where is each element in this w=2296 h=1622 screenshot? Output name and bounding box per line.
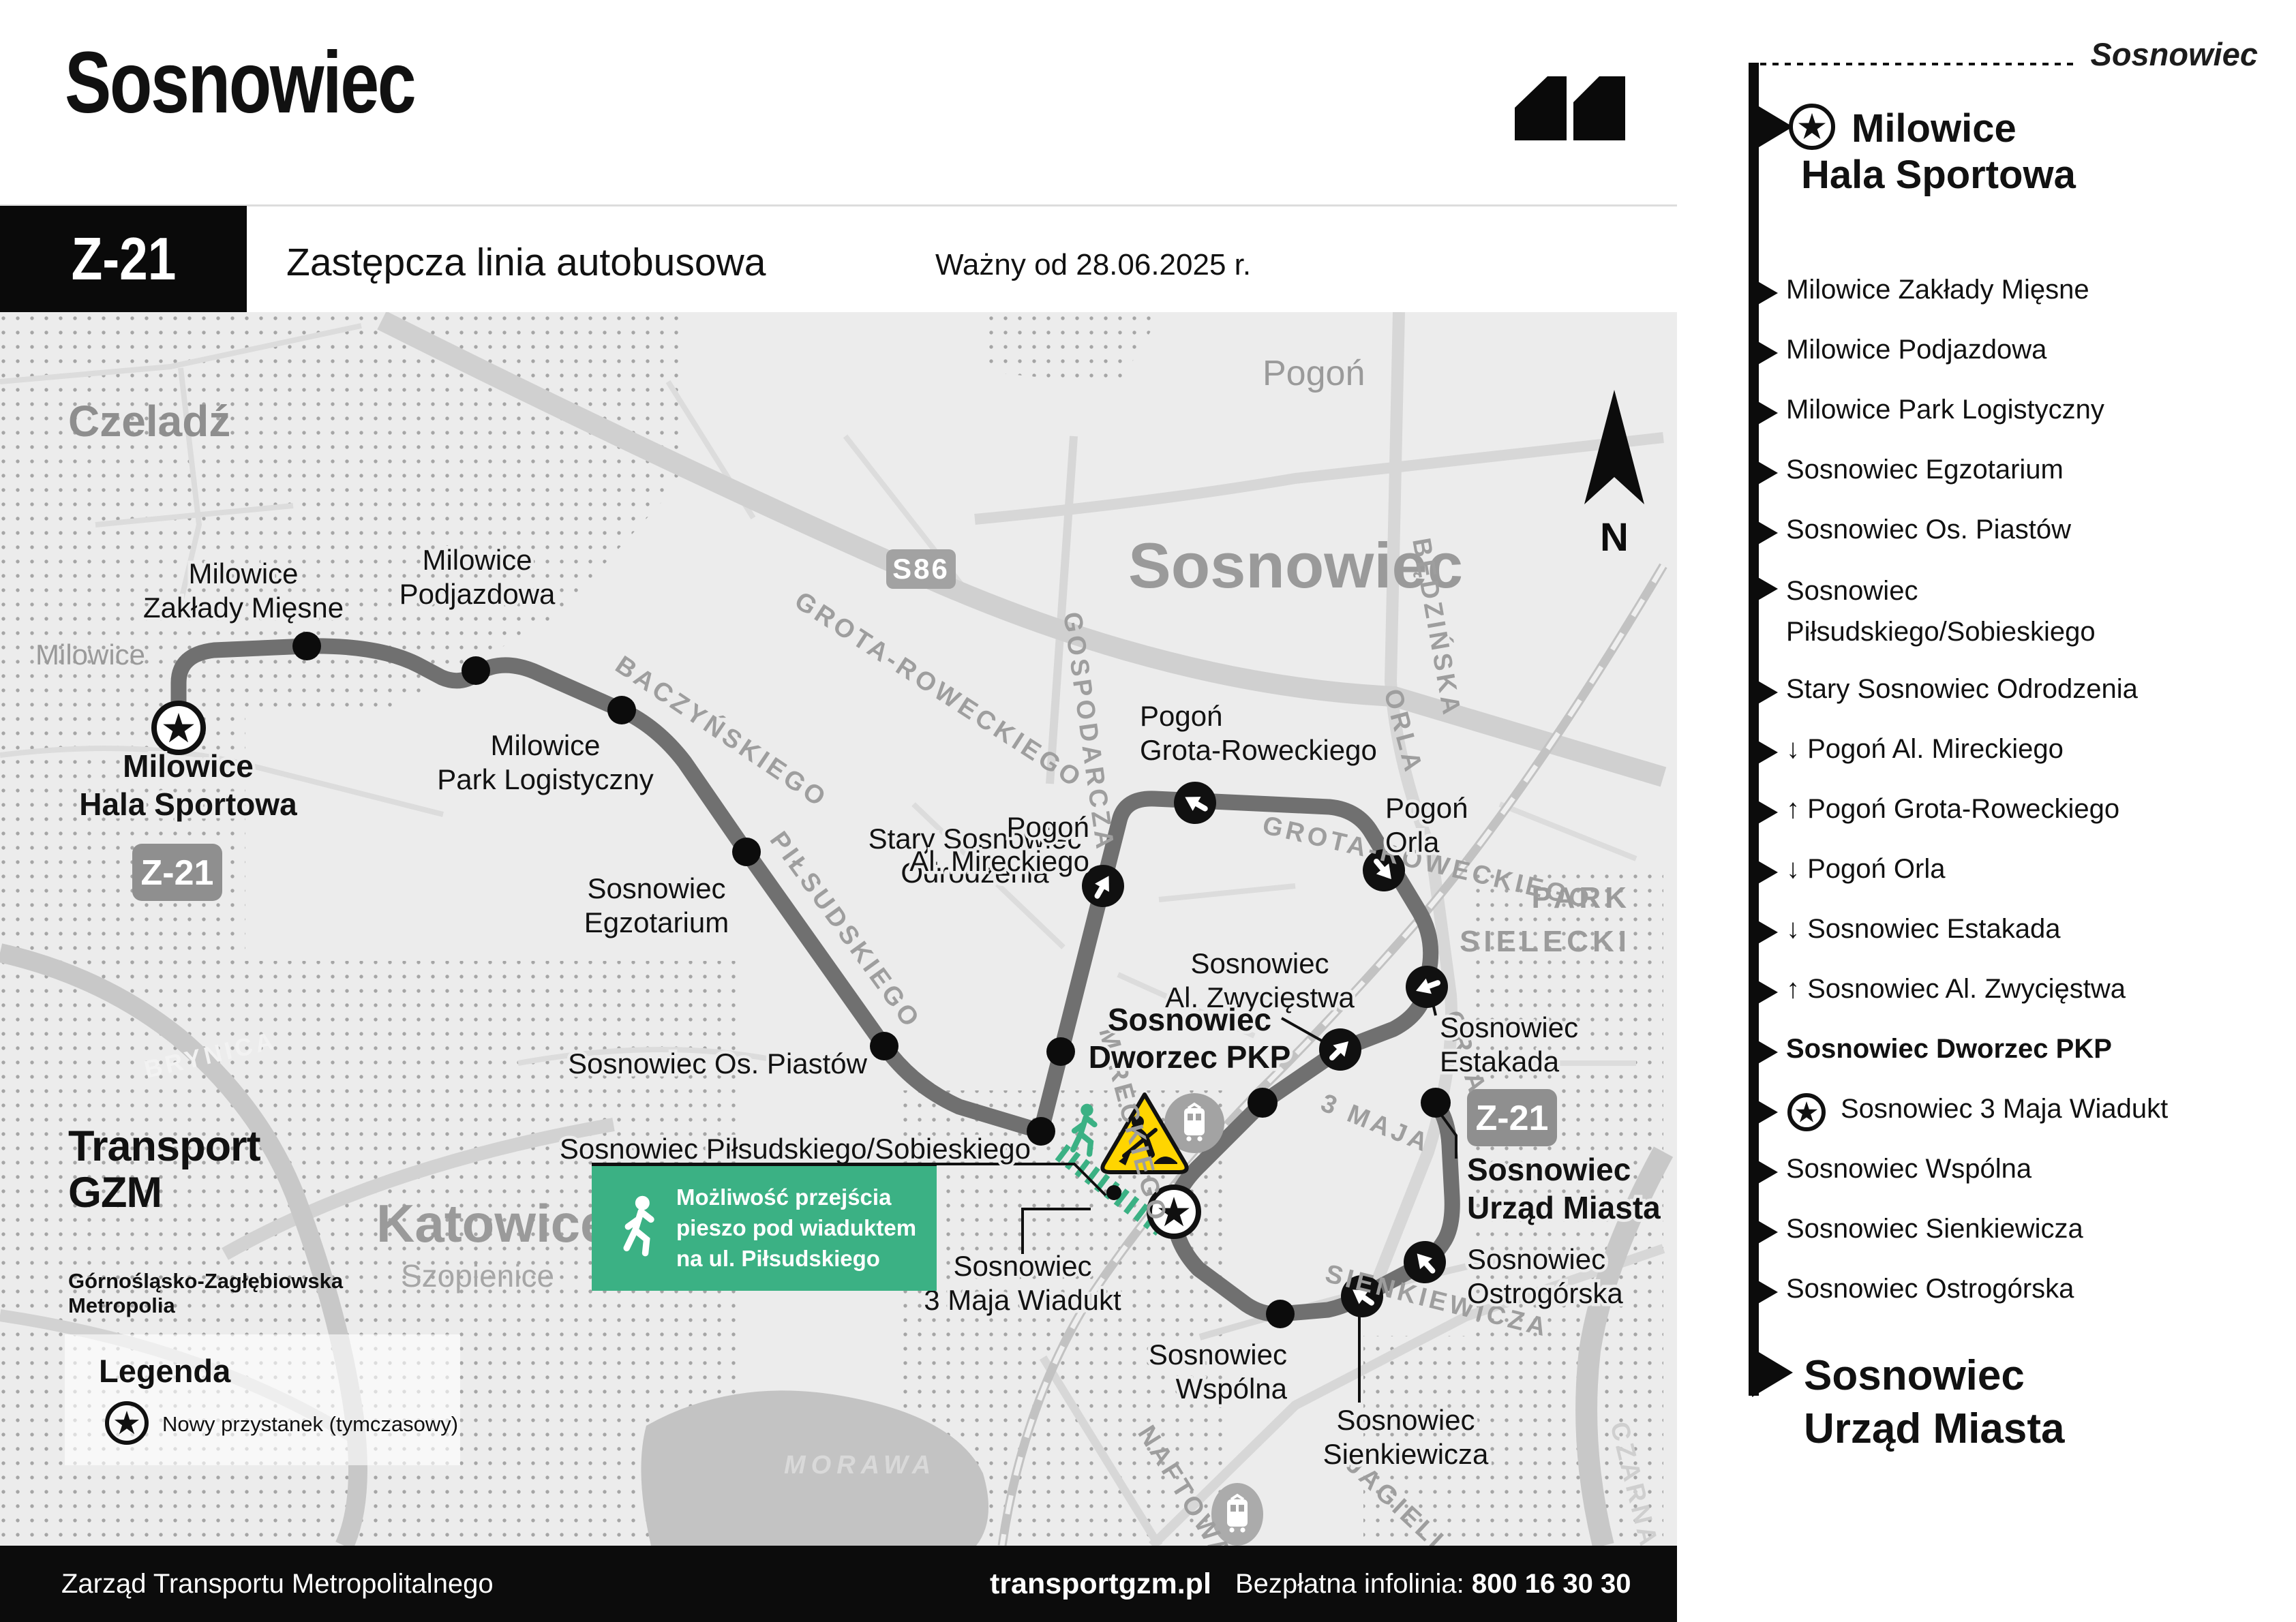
sidebar-stop-marker [1752, 977, 1778, 1007]
map-label: SIELECKI [1460, 925, 1631, 958]
sidebar-stop-label: ↓ Pogoń Orla [1786, 855, 1945, 883]
map-label: Pogoń [1140, 700, 1222, 732]
new-stop-star-icon [1786, 101, 1838, 153]
sidebar-stop-marker [1752, 338, 1778, 368]
svg-text:Z-21: Z-21 [141, 853, 214, 893]
map-label: Wspólna [1176, 1373, 1288, 1405]
sidebar-stop-label: Sosnowiec [1804, 1355, 2025, 1397]
map-label: Sosnowiec [1108, 1002, 1271, 1037]
sidebar-stop-label: Stary Sosnowiec Odrodzenia [1786, 675, 2138, 703]
sidebar-stop-marker [1752, 278, 1778, 308]
map-label: Katowice [376, 1193, 609, 1253]
sidebar-stop-label: Sosnowiec [1786, 577, 1918, 605]
map-label: Podjazdowa [399, 578, 556, 610]
stop-dot-dworzec-pkp [1248, 1088, 1278, 1118]
map-label: Szopienice [401, 1258, 554, 1294]
stop-dot-odrodzenia [1046, 1037, 1075, 1066]
hatch-midpoint-dot [1106, 1185, 1121, 1200]
map-label: Estakada [1440, 1045, 1560, 1077]
sidebar-stop-marker [1752, 857, 1778, 887]
sidebar-stop-label: Urząd Miasta [1804, 1408, 2064, 1450]
legend-title: Legenda [99, 1352, 230, 1390]
sidebar-stop-label: Milowice Zakłady Mięsne [1786, 276, 2089, 303]
svg-text:N: N [1600, 515, 1629, 560]
map-label: Sienkiewicza [1323, 1438, 1489, 1470]
map-label: Park Logistyczny [437, 763, 653, 795]
map-label: Pogoń [1263, 354, 1365, 393]
sidebar-stop-label: Piłsudskiego/Sobieskiego [1786, 618, 2096, 645]
sidebar-stop-label: Sosnowiec Wspólna [1786, 1155, 2031, 1182]
sidebar-stop-label: ↑ Sosnowiec Al. Zwycięstwa [1786, 975, 2126, 1003]
sidebar-stop-marker [1752, 1277, 1778, 1307]
map-label: Sosnowiec [1467, 1152, 1631, 1187]
sidebar-stop-label: Milowice Park Logistyczny [1786, 396, 2104, 423]
line-number-badge: Z-21 [0, 206, 247, 312]
svg-text:Z-21: Z-21 [1476, 1099, 1549, 1138]
map-label: Milowice [422, 544, 532, 576]
legend-item-label: Nowy przystanek (tymczasowy) [162, 1412, 458, 1437]
map-label: Ostrogórska [1467, 1277, 1623, 1309]
sidebar-stop-label: ↓ Pogoń Al. Mireckiego [1786, 735, 2064, 763]
sidebar-stop-marker [1752, 458, 1778, 488]
svg-text:S86: S86 [892, 553, 950, 585]
sidebar-stop-marker [1752, 398, 1778, 428]
map-label: Milowice [123, 748, 254, 784]
sidebar-stop-label: Sosnowiec Os. Piastów [1786, 516, 2071, 543]
sidebar-stop-label: Milowice [1852, 109, 2016, 149]
sidebar-stop-marker [1752, 1157, 1778, 1187]
sidebar-stop-marker [1752, 917, 1778, 947]
map-label: Sosnowiec [1336, 1404, 1475, 1436]
map-label: Egzotarium [584, 906, 729, 938]
map-label: Al. Mireckiego [909, 845, 1089, 877]
sidebar-stop-marker [1752, 797, 1778, 827]
map-label: Milowice [490, 729, 600, 761]
walker-icon [611, 1191, 664, 1266]
route-badge-urzad: Z-21 [1467, 1089, 1557, 1146]
sidebar-stop-marker [1752, 574, 1778, 604]
stop-dot-park-logistyczny [607, 696, 636, 724]
sidebar-stop-label: ↓ Sosnowiec Estakada [1786, 915, 2060, 943]
map-label: Zakłady Mięsne [143, 592, 344, 624]
sidebar-stop-marker [1752, 677, 1778, 707]
operator-subtitle: Górnośląsko-Zagłębiowska Metropolia [68, 1269, 343, 1318]
new-stop-star-icon [1785, 1090, 1828, 1134]
footer-hotline: Bezpłatna infolinia: 800 16 30 30 [1235, 1569, 1631, 1600]
stop-dot-pilsudskiego-sobieskiego [1027, 1117, 1055, 1146]
page-title: Sosnowiec [65, 33, 414, 133]
sidebar-region-label: Sosnowiec [2004, 35, 2258, 73]
map-label: Sosnowiec [1440, 1011, 1578, 1043]
poster-page: S86 Z-21 Z-21 N CzeladźMilowiceSosnowiec… [0, 0, 2296, 1622]
legend-star-icon [102, 1398, 151, 1448]
map-label: 3 Maja Wiadukt [924, 1284, 1121, 1316]
sidebar-stop-label: Hala Sportowa [1801, 155, 2076, 195]
footer-website: transportgzm.pl [990, 1567, 1211, 1601]
pedestrian-note-text: Możliwość przejścia pieszo pod wiaduktem… [676, 1182, 916, 1274]
sidebar-stop-label: ↑ Pogoń Grota-Roweckiego [1786, 795, 2119, 823]
star-stop-hala-sportowa [154, 703, 203, 752]
sidebar-stop-marker [1752, 1097, 1778, 1127]
subtitle: Zastępcza linia autobusowa [286, 240, 766, 285]
sidebar-stop-marker [1752, 1217, 1778, 1247]
stop-dot-os-piastow [870, 1032, 898, 1060]
map-label: Milowice [35, 639, 145, 671]
sidebar-stop-label: Milowice Podjazdowa [1786, 336, 2046, 363]
map-label: Urząd Miasta [1467, 1190, 1661, 1225]
stop-dot-egzotarium [732, 838, 761, 866]
sidebar-stop-label: Sosnowiec Egzotarium [1786, 456, 2064, 483]
sidebar-stop-label: Sosnowiec 3 Maja Wiadukt [1841, 1095, 2168, 1122]
map-label: Dworzec PKP [1089, 1039, 1291, 1075]
road-label: MORAWA [784, 1451, 936, 1480]
map-label: Sosnowiec [1149, 1338, 1287, 1371]
sidebar-stop-marker [1752, 1037, 1778, 1067]
map-label: Sosnowiec [587, 872, 725, 904]
map-label: Czeladź [68, 397, 230, 446]
sidebar-stop-label: Sosnowiec Ostrogórska [1786, 1275, 2074, 1302]
map-label: Sosnowiec [953, 1250, 1091, 1282]
header-divider [0, 204, 1677, 206]
stop-dot-zaklady-miesne [292, 632, 321, 660]
map-label: Sosnowiec [1190, 947, 1329, 979]
map-label: Hala Sportowa [79, 786, 297, 822]
map-label: Milowice [188, 557, 298, 590]
s86-road-badge: S86 [886, 549, 956, 589]
sidebar-stop-label: Sosnowiec Dworzec PKP [1786, 1035, 2112, 1062]
metropolia-m-logo [1512, 74, 1628, 142]
stop-dot-wspolna [1266, 1300, 1295, 1328]
map-label: Pogoń [1007, 811, 1089, 843]
sidebar-stop-marker [1752, 1348, 1793, 1397]
sidebar-stop-marker [1752, 737, 1778, 767]
pedestrian-note-box: Możliwość przejścia pieszo pod wiaduktem… [592, 1163, 937, 1291]
footer-organization: Zarząd Transportu Metropolitalnego [61, 1569, 494, 1600]
map-label: Sosnowiec Piłsudskiego/Sobieskiego [560, 1133, 1031, 1165]
stop-dot-urzad-miasta [1421, 1088, 1451, 1118]
map-label: Sosnowiec Os. Piastów [568, 1047, 868, 1080]
stop-dot-podjazdowa [462, 656, 490, 685]
operator-logo-text: Transport GZM [68, 1123, 260, 1216]
map-label: Sosnowiec [1467, 1243, 1605, 1275]
sidebar-route-line [1749, 63, 1759, 1396]
map-label: Grota-Roweckiego [1140, 734, 1377, 766]
map-label: Pogoń [1385, 792, 1468, 824]
valid-from-date: Ważny od 28.06.2025 r. [935, 248, 1251, 282]
map-label: Orla [1385, 826, 1440, 858]
sidebar-stop-marker [1752, 518, 1778, 548]
sidebar-stop-label: Sosnowiec Sienkiewicza [1786, 1215, 2083, 1242]
route-badge-hala: Z-21 [132, 844, 222, 901]
